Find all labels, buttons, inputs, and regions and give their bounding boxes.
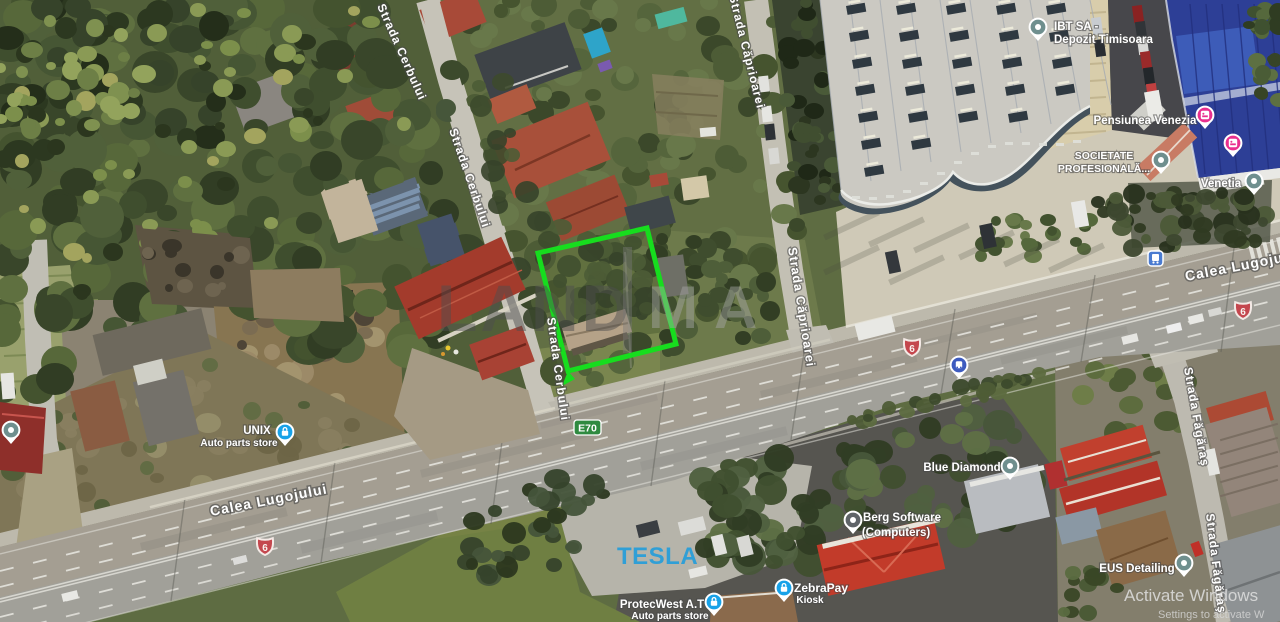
svg-text:6: 6 (909, 344, 915, 355)
svg-text:Depozit Timisoara: Depozit Timisoara (1054, 34, 1153, 46)
svg-text:(Computers): (Computers) (862, 527, 931, 539)
svg-text:EUS Detailing: EUS Detailing (1099, 563, 1174, 575)
svg-text:Auto parts store: Auto parts store (200, 438, 278, 449)
svg-text:ProtecWest A.T: ProtecWest A.T (620, 599, 704, 611)
svg-text:IBT SA -: IBT SA - (1054, 21, 1098, 33)
svg-text:TESLA: TESLA (617, 543, 698, 570)
svg-text:Venetia: Venetia (1201, 178, 1242, 190)
svg-text:6: 6 (262, 543, 268, 554)
svg-text:SOCIETATE: SOCIETATE (1075, 150, 1134, 162)
svg-text:Activate Windows: Activate Windows (1124, 586, 1258, 605)
svg-text:MA: MA (648, 274, 773, 341)
svg-text:Auto parts store: Auto parts store (631, 611, 709, 622)
svg-text:E70: E70 (578, 423, 597, 435)
svg-text:PROFESIONALĂ...: PROFESIONALĂ... (1058, 162, 1150, 175)
svg-text:Berg Software: Berg Software (863, 512, 941, 524)
svg-text:Blue Diamond: Blue Diamond (923, 462, 1000, 474)
svg-text:ZebraPay: ZebraPay (794, 581, 848, 595)
svg-text:UNIX: UNIX (243, 425, 271, 437)
svg-text:Kiosk: Kiosk (796, 595, 824, 606)
svg-text:Pensiunea Venezia: Pensiunea Venezia (1094, 115, 1198, 127)
svg-text:6: 6 (1240, 307, 1246, 318)
svg-text:LAND: LAND (437, 271, 632, 345)
svg-text:Settings to activate W: Settings to activate W (1158, 609, 1265, 621)
